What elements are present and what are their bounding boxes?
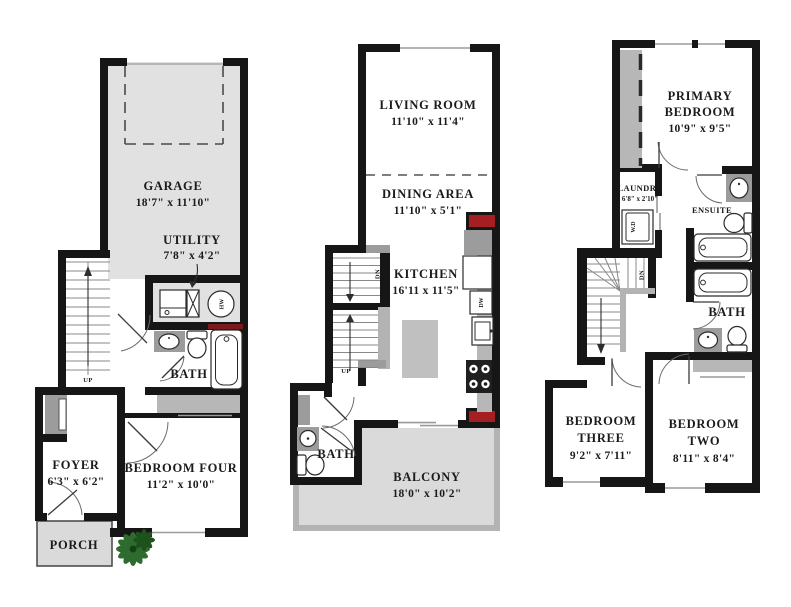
floorplan-canvas: UP HW [0,0,791,607]
bedroom-three-label-1: BEDROOM [566,414,637,428]
utility-label: UTILITY [163,233,221,247]
floor1-stairs[interactable]: UP [66,262,110,384]
bedroom-four-closet [157,395,240,413]
toilet-icon [727,327,747,353]
garage-dims: 18'7" x 11'10" [136,197,210,209]
floor3-plan: W.D [545,40,760,493]
bathtub-icon [694,234,751,261]
floor2-bath-label: BATH [317,447,354,461]
bedroom-two-label-1: BEDROOM [669,417,740,431]
bedroom-two-label-2: TWO [688,434,721,448]
bedroom-three-label-2: THREE [577,431,624,445]
dw-label: DW [479,297,485,307]
floor2-up-label: UP [341,368,350,375]
floor1-bath-label: BATH [170,367,207,381]
toilet-icon [724,213,752,233]
fridge-icon [463,256,492,289]
primary-bedroom-label-2: BEDROOM [665,105,736,119]
floor3-dn-label: DN [639,270,646,280]
toilet-icon [187,331,207,358]
floorplan-svg: UP HW [0,0,791,607]
primary-bedroom-windows [655,40,725,48]
foyer-label: FOYER [52,458,100,472]
balcony-label: BALCONY [393,470,460,484]
bathtub-icon [694,269,751,296]
foyer-closet [45,395,67,434]
sink-icon [297,427,319,451]
kitchen-dims: 16'11 x 11'5" [392,285,459,297]
washer-dryer-icon: W.D [622,210,653,244]
primary-bedroom-label-1: PRIMARY [668,89,733,103]
dishwasher-icon: DW [470,291,492,314]
furnace-icon [187,290,199,317]
laundry-label: LAUNDRY [617,183,662,193]
kitchen-appliances: DW [463,230,493,412]
bedroom-four-window [152,528,205,537]
balcony-dims: 18'0" x 10'2" [392,488,461,500]
floor2-dn-label: DN [375,269,382,279]
sink-icon [726,174,752,202]
floor1-up-label: UP [83,377,92,384]
bedroom-three-dims: 9'2" x 7'11" [570,450,632,462]
stove-icon [466,360,492,393]
hw-label: HW [220,299,226,310]
floor3-stairs[interactable]: DN [587,258,655,354]
living-room-dims: 11'10" x 11'4" [391,116,465,128]
kitchen-sink-icon [472,317,493,345]
primary-bedroom-dims: 10'9" x 9'5" [668,123,731,135]
bedroom-four-dims: 11'2" x 10'0" [147,479,215,491]
dining-area-dims: 11'10" x 5'1" [394,205,462,217]
floor1-red-accent [208,324,243,329]
floor1-plan: UP HW [35,58,248,566]
sink-icon [154,331,185,352]
porch-label: PORCH [50,538,99,552]
sink-icon [694,328,722,352]
dining-area-label: DINING AREA [382,187,474,201]
utility-dims: 7'8" x 4'2" [164,250,221,262]
kitchen-island [402,320,438,378]
ensuite-fixtures [694,174,752,261]
floor2-plan: DW [290,44,500,531]
wd-label: W.D [631,221,637,233]
garage-label: GARAGE [143,179,202,193]
living-room-label: LIVING ROOM [380,98,477,112]
laundry-dims: 6'8" x 2'10" [622,195,658,203]
water-heater-icon: HW [208,291,234,317]
balcony-slider-door[interactable] [398,420,458,428]
ensuite-label: ENSUITE [692,205,732,215]
bedroom-two-window [665,483,705,493]
floor3-bath-label: BATH [708,305,745,319]
bedroom-two-dims: 8'11" x 8'4" [673,453,735,465]
bedroom-three-window [563,477,600,487]
primary-closet [620,50,642,168]
living-room-window [400,44,470,52]
bedroom-two-closet [693,360,752,377]
kitchen-label: KITCHEN [394,267,458,281]
foyer-dims: 6'3" x 6'2" [48,476,105,488]
bathtub-icon [211,330,242,389]
washer-icon [160,290,186,317]
bedroom-four-label: BEDROOM FOUR [125,461,238,475]
